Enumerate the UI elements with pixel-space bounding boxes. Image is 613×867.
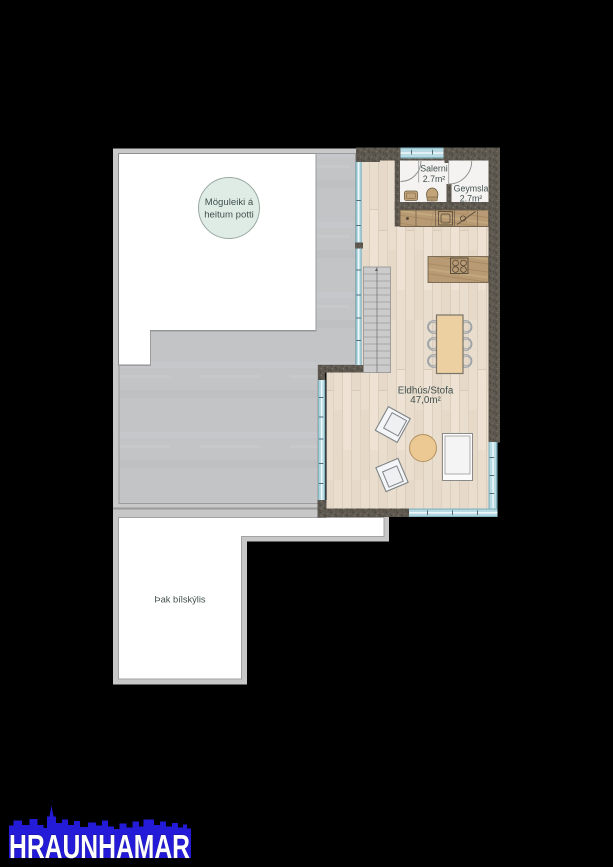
svg-text:heitum potti: heitum potti <box>204 210 254 221</box>
svg-text:Þak bílskýlis: Þak bílskýlis <box>154 595 205 605</box>
svg-text:HRAUNHAMAR: HRAUNHAMAR <box>9 828 190 865</box>
svg-text:Möguleiki á: Möguleiki á <box>205 197 254 208</box>
svg-text:2.7m²: 2.7m² <box>423 174 446 184</box>
svg-text:47,0m²: 47,0m² <box>410 395 441 406</box>
svg-text:Geymsla: Geymsla <box>454 184 489 194</box>
svg-text:Salerni: Salerni <box>420 164 447 174</box>
svg-text:2.7m²: 2.7m² <box>460 194 483 204</box>
